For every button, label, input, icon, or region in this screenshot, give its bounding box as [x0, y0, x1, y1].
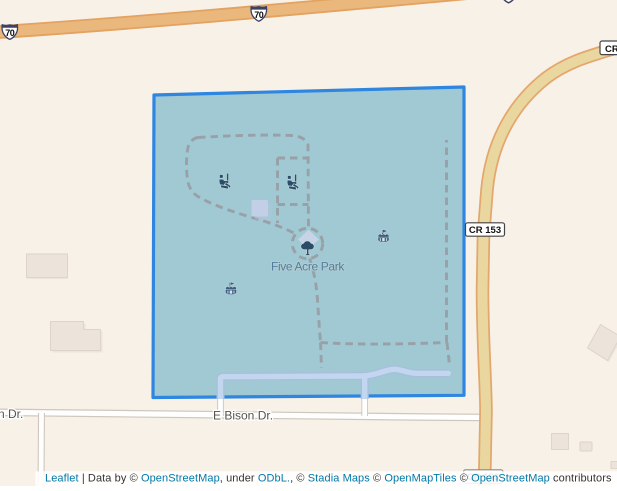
svg-text:Leaflet | Data by © OpenStreet: Leaflet | Data by © OpenStreetMap, under… [45, 472, 612, 484]
svg-text:E Bison Dr.: E Bison Dr. [213, 408, 273, 422]
svg-text:CR 153: CR 153 [469, 225, 501, 236]
svg-text:CR 1: CR 1 [605, 44, 617, 55]
svg-text:n Dr.: n Dr. [0, 407, 23, 421]
svg-text:70: 70 [5, 28, 15, 38]
svg-text:Five Acre Park: Five Acre Park [271, 260, 345, 274]
svg-text:70: 70 [254, 10, 264, 20]
